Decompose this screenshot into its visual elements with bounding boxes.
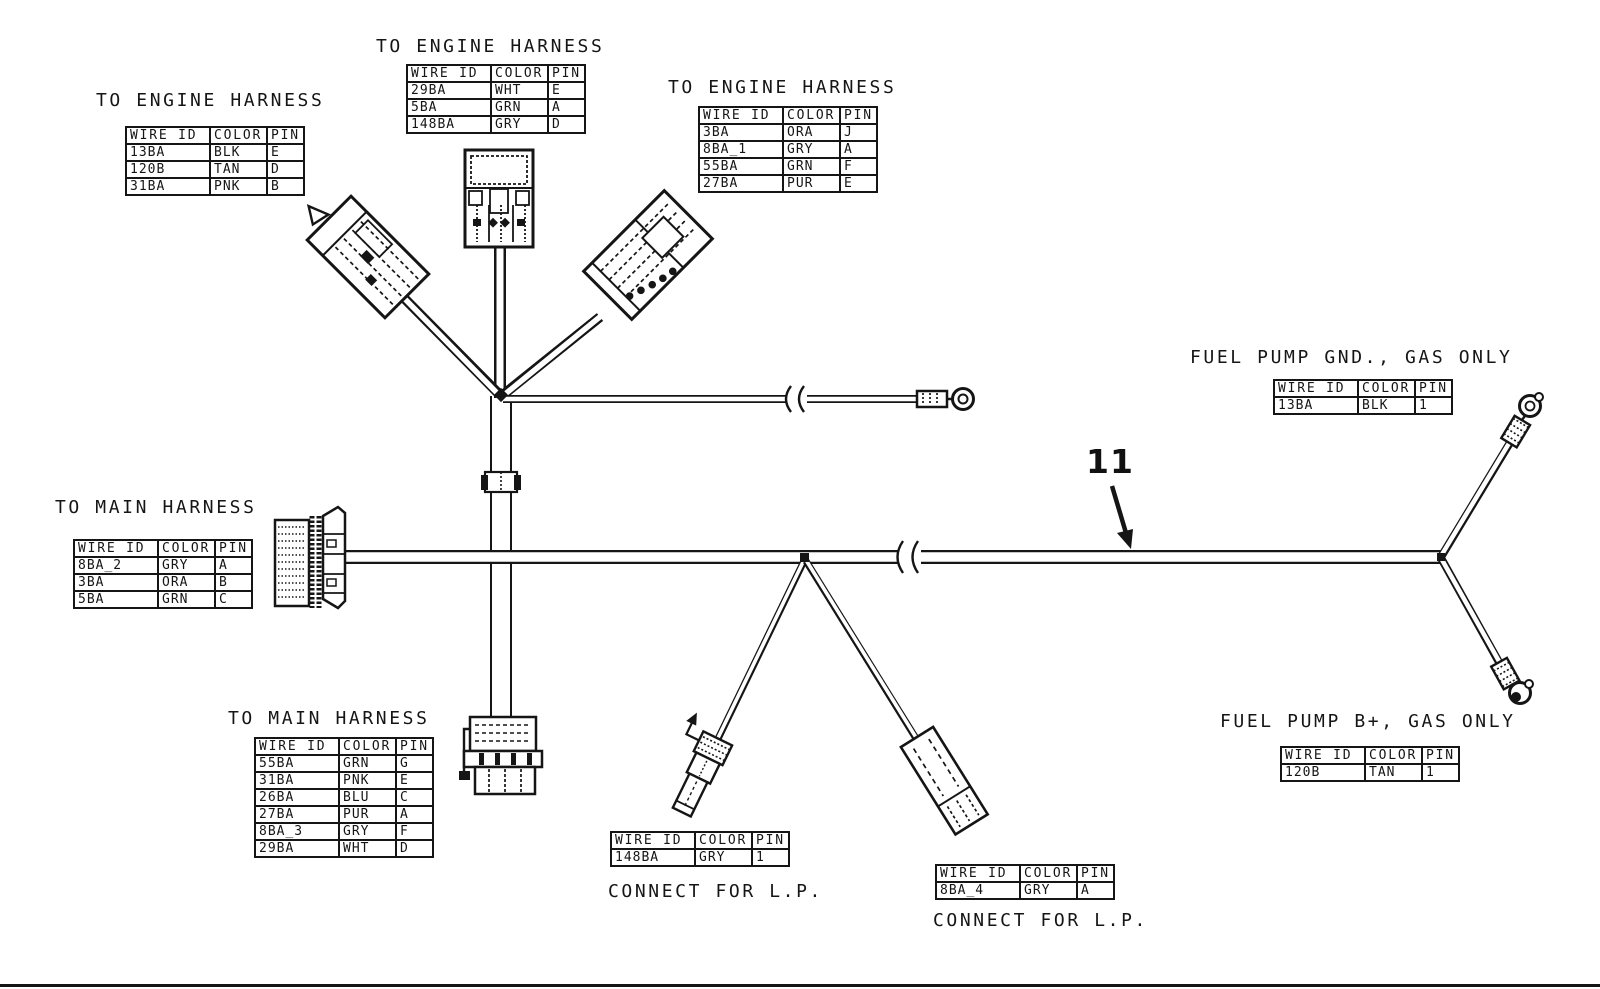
table-cell: C: [215, 591, 252, 608]
column-header: COLOR: [1365, 747, 1422, 764]
table-title: TO ENGINE HARNESS: [96, 90, 324, 112]
table-cell: G: [396, 755, 433, 772]
table-title: TO ENGINE HARNESS: [376, 36, 604, 58]
wire-table: WIRE IDCOLORPIN120BTAN1: [1280, 746, 1460, 782]
table-cell: A: [396, 806, 433, 823]
table-cell: 5BA: [407, 99, 491, 116]
table-row: 120BTAND: [126, 161, 304, 178]
harness-clamp: [481, 472, 521, 492]
wire-table-grid: WIRE IDCOLORPIN8BA_2GRYA3BAORAB5BAGRNC: [73, 539, 253, 609]
table-cell: 31BA: [255, 772, 339, 789]
table-cell: BLU: [339, 789, 396, 806]
table-row: 120BTAN1: [1281, 764, 1459, 781]
wire-table-grid: WIRE IDCOLORPIN13BABLKE120BTAND31BAPNKB: [125, 126, 305, 196]
callout-arrow: [1112, 486, 1133, 549]
table-cell: 29BA: [255, 840, 339, 857]
table-cell: 148BA: [407, 116, 491, 133]
table-cell: C: [396, 789, 433, 806]
table-cell: 13BA: [1274, 397, 1358, 414]
table-header-row: WIRE IDCOLORPIN: [1281, 747, 1459, 764]
wire-table-grid: WIRE IDCOLORPIN29BAWHTE5BAGRNA148BAGRYD: [406, 64, 586, 134]
column-header: WIRE ID: [611, 832, 695, 849]
wire-table-grid: WIRE IDCOLORPIN120BTAN1: [1280, 746, 1460, 782]
table-cell: 55BA: [255, 755, 339, 772]
table-cell: GRY: [1020, 882, 1077, 899]
table-row: 26BABLUC: [255, 789, 433, 806]
wire-table-grid: WIRE IDCOLORPIN3BAORAJ8BA_1GRYA55BAGRNF2…: [698, 106, 878, 193]
column-header: WIRE ID: [407, 65, 491, 82]
wire-table: WIRE IDCOLORPIN8BA_2GRYA3BAORAB5BAGRNC: [73, 539, 253, 609]
column-header: COLOR: [1020, 865, 1077, 882]
ring-terminal-bottom-right: [1491, 658, 1533, 704]
table-row: 29BAWHTE: [407, 82, 585, 99]
column-header: PIN: [752, 832, 789, 849]
lp-connector-right: [901, 727, 988, 834]
table-row: 55BAGRNG: [255, 755, 433, 772]
table-cell: B: [215, 574, 252, 591]
fuel-pump-gnd-table: FUEL PUMP GND., GAS ONLY WIRE IDCOLORPIN…: [1190, 347, 1513, 419]
column-header: WIRE ID: [126, 127, 210, 144]
wire-table-grid: WIRE IDCOLORPIN55BAGRNG31BAPNKE26BABLUC2…: [254, 737, 434, 858]
column-header: PIN: [267, 127, 304, 144]
connector-hook-arrow: [686, 710, 701, 726]
table-row: 3BAORAB: [74, 574, 252, 591]
column-header: WIRE ID: [699, 107, 783, 124]
fuel-pump-b-plus-table: FUEL PUMP B+, GAS ONLY WIRE IDCOLORPIN12…: [1220, 711, 1516, 786]
column-header: PIN: [1422, 747, 1459, 764]
table-row: 148BAGRY1: [611, 849, 789, 866]
table-cell: GRN: [158, 591, 215, 608]
table-caption: CONNECT FOR L.P.: [608, 881, 823, 903]
wire-table: WIRE IDCOLORPIN13BABLK1: [1273, 379, 1453, 415]
table-cell: PNK: [210, 178, 267, 195]
wire-table: WIRE IDCOLORPIN148BAGRY1: [610, 831, 790, 867]
table-row: 31BAPNKB: [126, 178, 304, 195]
table-cell: PUR: [339, 806, 396, 823]
table-cell: PUR: [783, 175, 840, 192]
table-row: 29BAWHTD: [255, 840, 433, 857]
table-cell: ORA: [158, 574, 215, 591]
column-header: COLOR: [1358, 380, 1415, 397]
column-header: PIN: [1415, 380, 1452, 397]
main-harness-table-left: TO MAIN HARNESS WIRE IDCOLORPIN8BA_2GRYA…: [55, 497, 257, 613]
table-cell: A: [1077, 882, 1114, 899]
table-row: 8BA_3GRYF: [255, 823, 433, 840]
lp-left-wire: [716, 560, 804, 743]
table-cell: GRY: [158, 557, 215, 574]
table-cell: ORA: [783, 124, 840, 141]
table-row: 27BAPURA: [255, 806, 433, 823]
table-caption: CONNECT FOR L.P.: [933, 910, 1148, 932]
junction-dot-lp: [800, 553, 809, 562]
table-cell: 27BA: [255, 806, 339, 823]
column-header: WIRE ID: [1281, 747, 1365, 764]
table-title: TO MAIN HARNESS: [55, 497, 257, 519]
fuel-pump-gnd-terminal: [917, 389, 974, 410]
table-cell: 120B: [126, 161, 210, 178]
column-header: WIRE ID: [74, 540, 158, 557]
table-cell: F: [396, 823, 433, 840]
table-cell: 3BA: [74, 574, 158, 591]
column-header: COLOR: [210, 127, 267, 144]
connect-for-lp-table-right: WIRE IDCOLORPIN8BA_4GRYA CONNECT FOR L.P…: [933, 864, 1148, 932]
junction-dot-y: [1437, 553, 1445, 561]
table-cell: 26BA: [255, 789, 339, 806]
connect-for-lp-table-left: WIRE IDCOLORPIN148BAGRY1 CONNECT FOR L.P…: [608, 831, 823, 903]
table-cell: GRY: [339, 823, 396, 840]
table-cell: 1: [1422, 764, 1459, 781]
table-cell: 27BA: [699, 175, 783, 192]
table-cell: A: [548, 99, 585, 116]
main-harness-table-bottom: TO MAIN HARNESS WIRE IDCOLORPIN55BAGRNG3…: [228, 708, 434, 862]
table-cell: D: [396, 840, 433, 857]
table-cell: TAN: [1365, 764, 1422, 781]
table-cell: GRN: [339, 755, 396, 772]
table-row: 8BA_4GRYA: [936, 882, 1114, 899]
engine-connector-center: [465, 150, 533, 247]
engine-harness-table-top-left: TO ENGINE HARNESS WIRE IDCOLORPIN13BABLK…: [96, 90, 324, 200]
wiring-diagram-page: TO ENGINE HARNESS WIRE IDCOLORPIN13BABLK…: [0, 0, 1600, 989]
column-header: PIN: [840, 107, 877, 124]
engine-left-wire: [403, 297, 498, 394]
engine-right-wire: [504, 316, 601, 395]
table-header-row: WIRE IDCOLORPIN: [611, 832, 789, 849]
fuel-pump-gnd-wire: [503, 386, 947, 412]
table-cell: 3BA: [699, 124, 783, 141]
table-cell: BLK: [210, 144, 267, 161]
wire-table: WIRE IDCOLORPIN55BAGRNG31BAPNKE26BABLUC2…: [254, 737, 434, 858]
table-title: FUEL PUMP B+, GAS ONLY: [1220, 711, 1516, 733]
column-header: PIN: [1077, 865, 1114, 882]
table-cell: E: [396, 772, 433, 789]
table-title: TO MAIN HARNESS: [228, 708, 434, 730]
main-connector-bottom: [459, 717, 542, 794]
wire-table-grid: WIRE IDCOLORPIN8BA_4GRYA: [935, 864, 1115, 900]
wire-table-grid: WIRE IDCOLORPIN148BAGRY1: [610, 831, 790, 867]
column-header: PIN: [548, 65, 585, 82]
engine-connector-right: [584, 191, 713, 320]
table-header-row: WIRE IDCOLORPIN: [407, 65, 585, 82]
table-cell: TAN: [210, 161, 267, 178]
table-cell: 8BA_1: [699, 141, 783, 158]
table-cell: 8BA_2: [74, 557, 158, 574]
table-row: 148BAGRYD: [407, 116, 585, 133]
table-title: FUEL PUMP GND., GAS ONLY: [1190, 347, 1513, 369]
wire-table: WIRE IDCOLORPIN3BAORAJ8BA_1GRYA55BAGRNF2…: [698, 106, 878, 193]
wire-table-grid: WIRE IDCOLORPIN13BABLK1: [1273, 379, 1453, 415]
table-cell: 148BA: [611, 849, 695, 866]
column-header: COLOR: [695, 832, 752, 849]
column-header: COLOR: [783, 107, 840, 124]
table-cell: F: [840, 158, 877, 175]
table-cell: GRY: [491, 116, 548, 133]
table-cell: GRY: [695, 849, 752, 866]
column-header: COLOR: [158, 540, 215, 557]
table-cell: 120B: [1281, 764, 1365, 781]
table-cell: WHT: [339, 840, 396, 857]
table-header-row: WIRE IDCOLORPIN: [1274, 380, 1452, 397]
page-edge-line: [0, 984, 1600, 987]
table-row: 13BABLKE: [126, 144, 304, 161]
table-cell: WHT: [491, 82, 548, 99]
table-cell: GRN: [491, 99, 548, 116]
engine-harness-table-top-center: TO ENGINE HARNESS WIRE IDCOLORPIN29BAWHT…: [376, 36, 604, 138]
table-cell: PNK: [339, 772, 396, 789]
table-cell: BLK: [1358, 397, 1415, 414]
table-cell: E: [840, 175, 877, 192]
table-header-row: WIRE IDCOLORPIN: [936, 865, 1114, 882]
table-row: 5BAGRNC: [74, 591, 252, 608]
table-cell: 55BA: [699, 158, 783, 175]
table-header-row: WIRE IDCOLORPIN: [699, 107, 877, 124]
table-title: TO ENGINE HARNESS: [668, 77, 896, 99]
fuel-pump-gnd-branch-wire: [1441, 440, 1511, 557]
table-cell: J: [840, 124, 877, 141]
fuel-pump-b-branch-wire: [1441, 558, 1500, 664]
table-row: 5BAGRNA: [407, 99, 585, 116]
table-header-row: WIRE IDCOLORPIN: [255, 738, 433, 755]
table-cell: 1: [752, 849, 789, 866]
table-cell: 8BA_3: [255, 823, 339, 840]
wire-table: WIRE IDCOLORPIN13BABLKE120BTAND31BAPNKB: [125, 126, 305, 196]
table-row: 55BAGRNF: [699, 158, 877, 175]
table-cell: A: [215, 557, 252, 574]
table-cell: GRY: [783, 141, 840, 158]
table-cell: 8BA_4: [936, 882, 1020, 899]
table-cell: A: [840, 141, 877, 158]
table-cell: E: [267, 144, 304, 161]
column-header: WIRE ID: [936, 865, 1020, 882]
table-row: 31BAPNKE: [255, 772, 433, 789]
table-cell: GRN: [783, 158, 840, 175]
table-cell: 31BA: [126, 178, 210, 195]
table-cell: 13BA: [126, 144, 210, 161]
wire-table: WIRE IDCOLORPIN8BA_4GRYA: [935, 864, 1115, 900]
table-cell: B: [267, 178, 304, 195]
lp-right-wire: [806, 560, 917, 740]
column-header: COLOR: [339, 738, 396, 755]
table-row: 8BA_1GRYA: [699, 141, 877, 158]
table-row: 3BAORAJ: [699, 124, 877, 141]
column-header: COLOR: [491, 65, 548, 82]
table-cell: 5BA: [74, 591, 158, 608]
table-cell: 29BA: [407, 82, 491, 99]
column-header: WIRE ID: [1274, 380, 1358, 397]
table-row: 27BAPURE: [699, 175, 877, 192]
table-header-row: WIRE IDCOLORPIN: [126, 127, 304, 144]
column-header: WIRE ID: [255, 738, 339, 755]
table-cell: E: [548, 82, 585, 99]
table-cell: 1: [1415, 397, 1452, 414]
engine-harness-table-top-right: TO ENGINE HARNESS WIRE IDCOLORPIN3BAORAJ…: [668, 77, 896, 197]
table-cell: D: [267, 161, 304, 178]
column-header: PIN: [215, 540, 252, 557]
table-cell: D: [548, 116, 585, 133]
table-row: 8BA_2GRYA: [74, 557, 252, 574]
wire-table: WIRE IDCOLORPIN29BAWHTE5BAGRNA148BAGRYD: [406, 64, 586, 134]
wire-break: [786, 386, 791, 412]
column-header: PIN: [396, 738, 433, 755]
wire-break: [898, 541, 904, 573]
table-row: 13BABLK1: [1274, 397, 1452, 414]
table-header-row: WIRE IDCOLORPIN: [74, 540, 252, 557]
callout-11-label: 11: [1086, 442, 1134, 481]
main-connector-left: [275, 507, 345, 608]
